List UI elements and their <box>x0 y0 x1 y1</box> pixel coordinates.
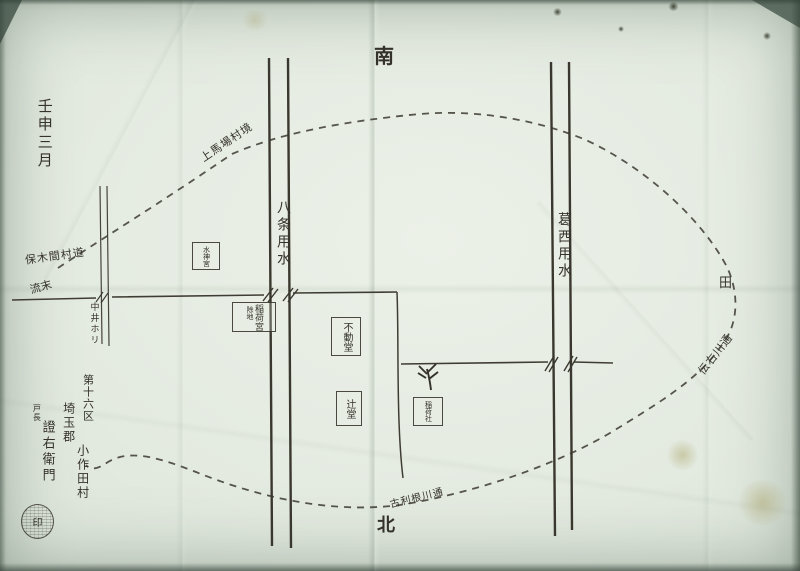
hachijo-canal-label: 八条用水 <box>268 200 290 268</box>
seal-text: 印 <box>33 514 43 529</box>
photo-of-map: 壬申三月 南 北 田 八条用水 葛西用水 中井ホリ 伝右川通 古利根川通 保木間… <box>0 0 800 571</box>
roadside-hall-box: 辻堂 <box>336 391 362 426</box>
small-shrine-label: 水神宮 <box>203 246 210 267</box>
inari-annex-prefix: 除地 <box>246 306 253 320</box>
fudo-hall-label: 不動堂 <box>341 322 351 352</box>
inari-shrine-box: 稲荷社 <box>413 397 443 426</box>
compass-south-label: 南 <box>374 40 394 69</box>
village-label: 小作田村 <box>76 444 89 500</box>
county-label: 埼玉郡 <box>62 402 75 444</box>
compass-north-label: 北 <box>377 511 395 537</box>
nakai-ditch-label: 中井ホリ <box>88 302 97 346</box>
paper-sheet <box>0 0 800 571</box>
inari-shrine-label: 稲荷社 <box>425 401 432 422</box>
roadside-hall-label: 辻堂 <box>344 399 354 419</box>
district-label: 第十六区 <box>82 374 94 422</box>
field-marker-label: 田 <box>719 272 732 291</box>
kasai-canal-label: 葛西用水 <box>549 212 571 280</box>
inari-annex-box: 除地 稲荷宮 <box>232 302 276 332</box>
fudo-hall-box: 不動堂 <box>331 317 361 356</box>
date-inscription: 壬申三月 <box>36 98 52 193</box>
small-shrine-box: 水神宮 <box>192 242 220 270</box>
village-seal: 印 <box>21 504 54 539</box>
inari-annex-label: 稲荷宮 <box>253 304 262 331</box>
signer-name-label: 證右衛門 <box>40 420 54 484</box>
